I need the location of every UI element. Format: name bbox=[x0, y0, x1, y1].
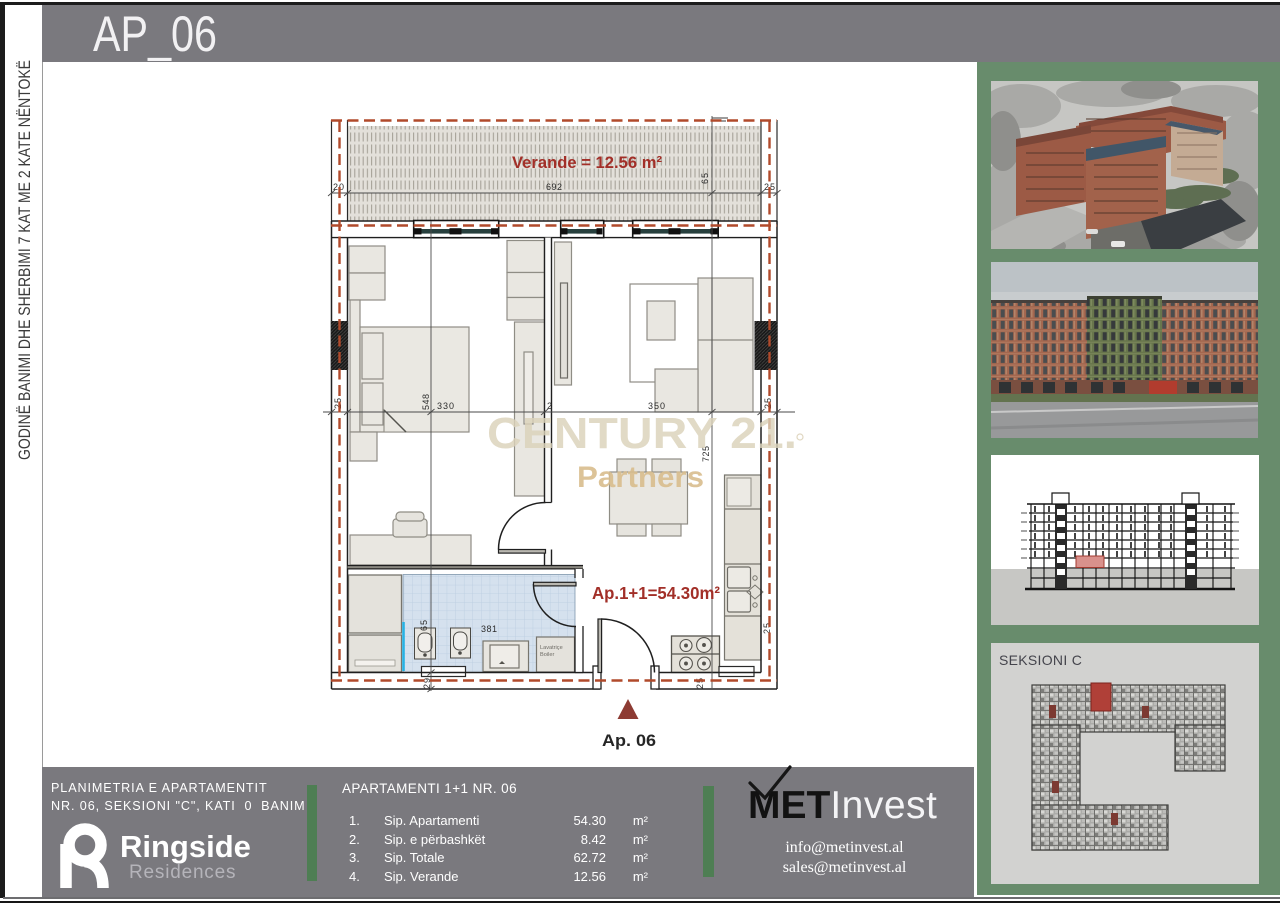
svg-text:25: 25 bbox=[333, 398, 343, 409]
svg-text:Boiler: Boiler bbox=[540, 652, 554, 658]
svg-text:Partners: Partners bbox=[577, 461, 704, 494]
svg-text:CENTURY 21.: CENTURY 21. bbox=[487, 409, 797, 458]
svg-text:SEKSIONI C: SEKSIONI C bbox=[999, 652, 1082, 668]
svg-text:65: 65 bbox=[700, 173, 710, 184]
svg-text:Ap.1+1=54.30m²: Ap.1+1=54.30m² bbox=[592, 583, 720, 603]
svg-text:692: 692 bbox=[546, 182, 562, 192]
svg-text:25: 25 bbox=[763, 398, 773, 409]
svg-text:AP_06: AP_06 bbox=[93, 6, 217, 62]
svg-text:GODINË BANIMI DHE SHERBIMI 7 K: GODINË BANIMI DHE SHERBIMI 7 KAT ME 2 KA… bbox=[15, 60, 34, 460]
svg-text:65: 65 bbox=[419, 620, 429, 631]
svg-text:Verande = 12.56 m²: Verande = 12.56 m² bbox=[512, 154, 662, 172]
svg-text:330: 330 bbox=[437, 401, 454, 411]
svg-text:548: 548 bbox=[421, 394, 431, 410]
svg-text:381: 381 bbox=[481, 624, 497, 634]
svg-text:Ap. 06: Ap. 06 bbox=[602, 731, 656, 750]
svg-text:Lavatriçe: Lavatriçe bbox=[540, 645, 563, 651]
